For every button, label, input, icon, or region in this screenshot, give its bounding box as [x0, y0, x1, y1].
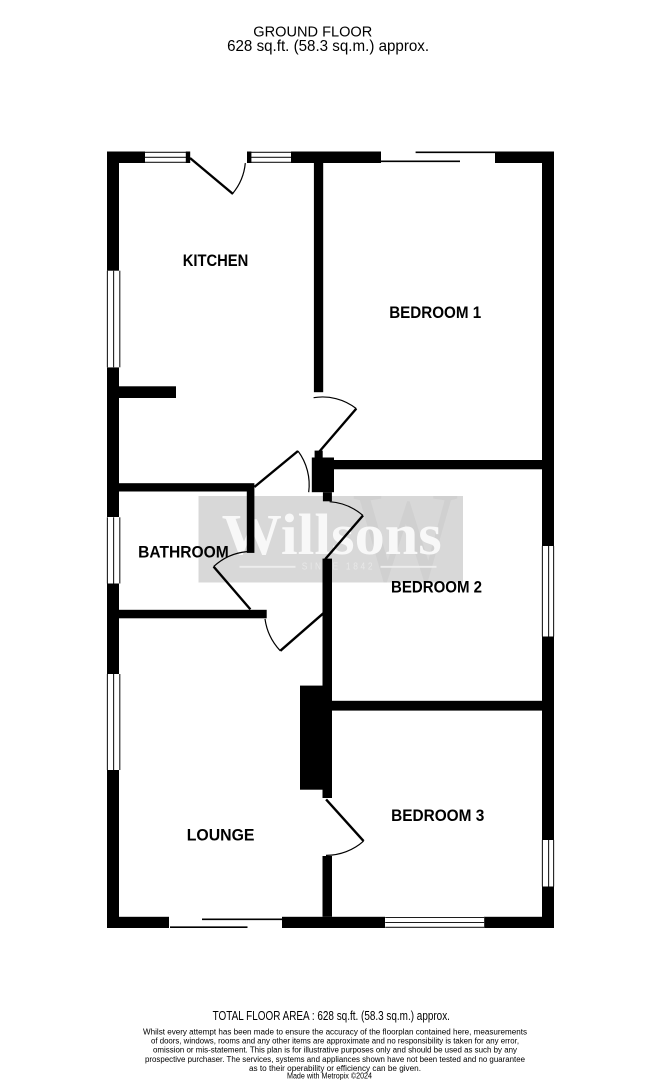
svg-text:prospective purchaser. The ser: prospective purchaser. The services, sys…: [145, 1055, 526, 1064]
svg-text:of doors, windows, rooms and a: of doors, windows, rooms and any other i…: [151, 1037, 519, 1046]
svg-text:BEDROOM 3: BEDROOM 3: [391, 806, 484, 825]
svg-text:BATHROOM: BATHROOM: [138, 542, 229, 561]
svg-text:LOUNGE: LOUNGE: [187, 826, 255, 845]
svg-text:BEDROOM 1: BEDROOM 1: [389, 303, 481, 322]
svg-text:TOTAL FLOOR AREA : 628 sq.ft.: TOTAL FLOOR AREA : 628 sq.ft. (58.3 sq.m…: [213, 1009, 450, 1023]
svg-text:628 sq.ft. (58.3 sq.m.) approx: 628 sq.ft. (58.3 sq.m.) approx.: [227, 38, 429, 55]
svg-text:Willsons: Willsons: [222, 502, 442, 567]
svg-text:Whilst every attempt has been: Whilst every attempt has been made to en…: [143, 1028, 527, 1037]
svg-text:SINCE 1842: SINCE 1842: [302, 562, 376, 573]
svg-text:Made with Metropix ©2024: Made with Metropix ©2024: [287, 1072, 372, 1080]
svg-text:KITCHEN: KITCHEN: [183, 251, 249, 270]
svg-text:BEDROOM 2: BEDROOM 2: [391, 578, 482, 597]
svg-text:omission or mis-statement. Thi: omission or mis-statement. This plan is …: [153, 1046, 517, 1055]
